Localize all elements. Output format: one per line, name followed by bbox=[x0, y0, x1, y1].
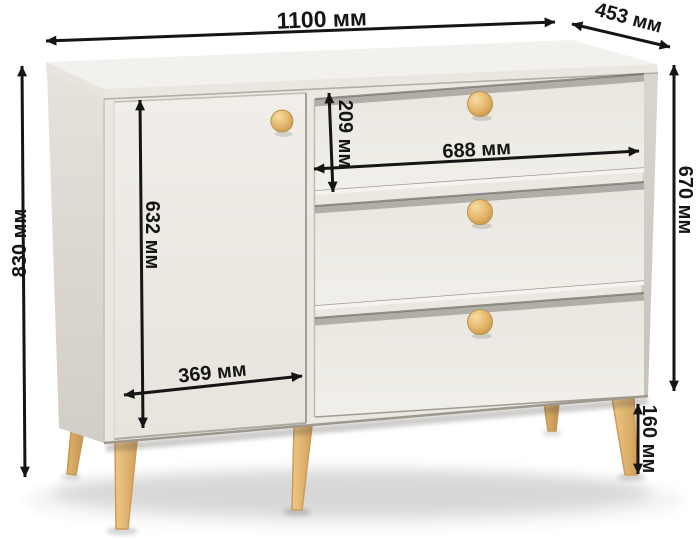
cabinet-left-side bbox=[47, 70, 104, 443]
overall-height-label: 830 мм bbox=[9, 209, 31, 278]
drawer-width-label: 688 мм bbox=[442, 137, 512, 163]
dim-leg-height: 160 мм bbox=[638, 404, 660, 474]
dim-depth: 453 мм bbox=[572, 0, 670, 47]
top-drawer-height-label: 209 мм bbox=[334, 100, 356, 169]
body-height-label: 670 мм bbox=[674, 166, 696, 235]
dim-body-height: 670 мм bbox=[674, 65, 696, 391]
dim-overall-height: 830 мм bbox=[9, 66, 31, 477]
drawer-1-knob bbox=[468, 92, 493, 117]
leg-height-label: 160 мм bbox=[638, 405, 660, 474]
dim-overall-width: 1100 мм bbox=[46, 4, 555, 41]
leg-front-right bbox=[612, 398, 637, 475]
drawer-3-knob bbox=[468, 310, 493, 335]
drawer-2-knob bbox=[468, 200, 493, 225]
diagram-canvas: 1100 мм 453 мм 830 мм 632 мм 209 мм 688 … bbox=[0, 0, 700, 540]
furniture-dimension-diagram: 1100 мм 453 мм 830 мм 632 мм 209 мм 688 … bbox=[0, 0, 700, 540]
overall-width-label: 1100 мм bbox=[276, 4, 367, 33]
door-knob bbox=[271, 110, 293, 132]
door-height-label: 632 мм bbox=[141, 201, 163, 270]
